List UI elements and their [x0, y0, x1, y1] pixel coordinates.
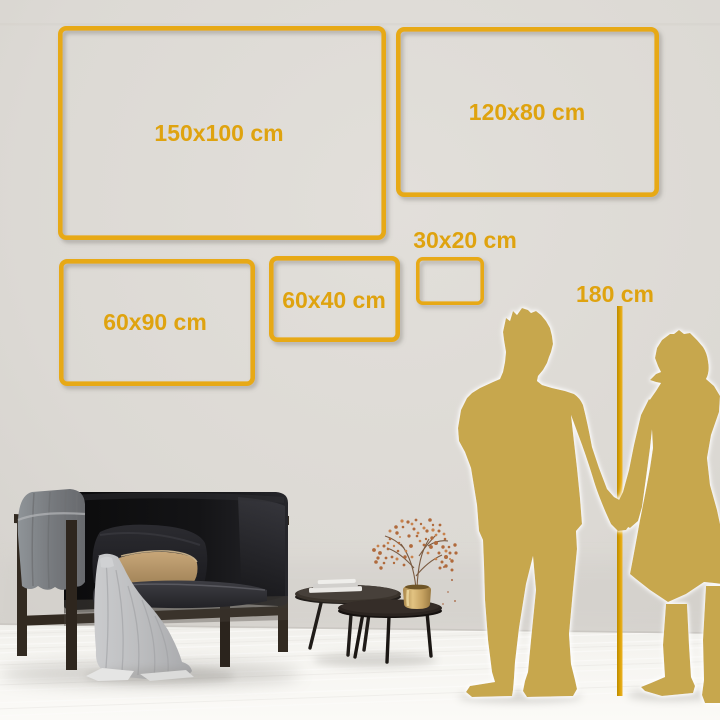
- svg-text:120x80 cm: 120x80 cm: [469, 99, 585, 125]
- svg-text:30x20 cm: 30x20 cm: [413, 227, 517, 253]
- svg-text:180 cm: 180 cm: [576, 281, 654, 307]
- svg-text:150x100 cm: 150x100 cm: [154, 120, 283, 146]
- svg-text:60x90 cm: 60x90 cm: [103, 309, 207, 335]
- svg-text:60x40 cm: 60x40 cm: [282, 287, 386, 313]
